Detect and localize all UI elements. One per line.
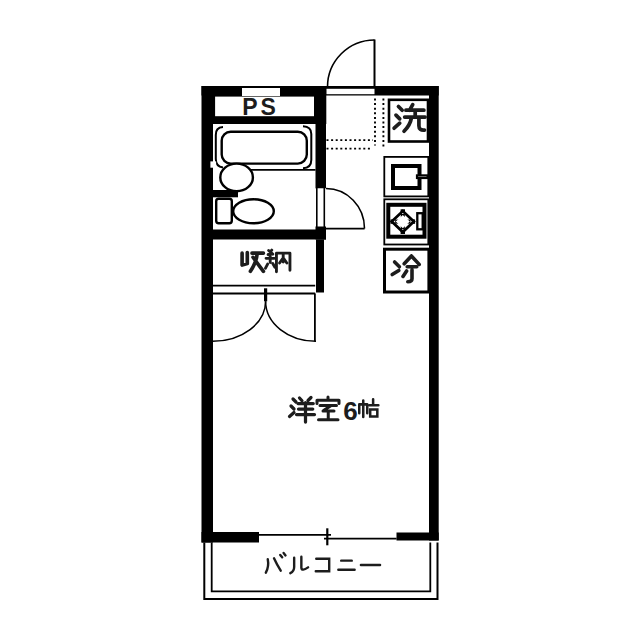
svg-text:6: 6	[343, 396, 357, 426]
svg-text:PS: PS	[242, 94, 279, 120]
